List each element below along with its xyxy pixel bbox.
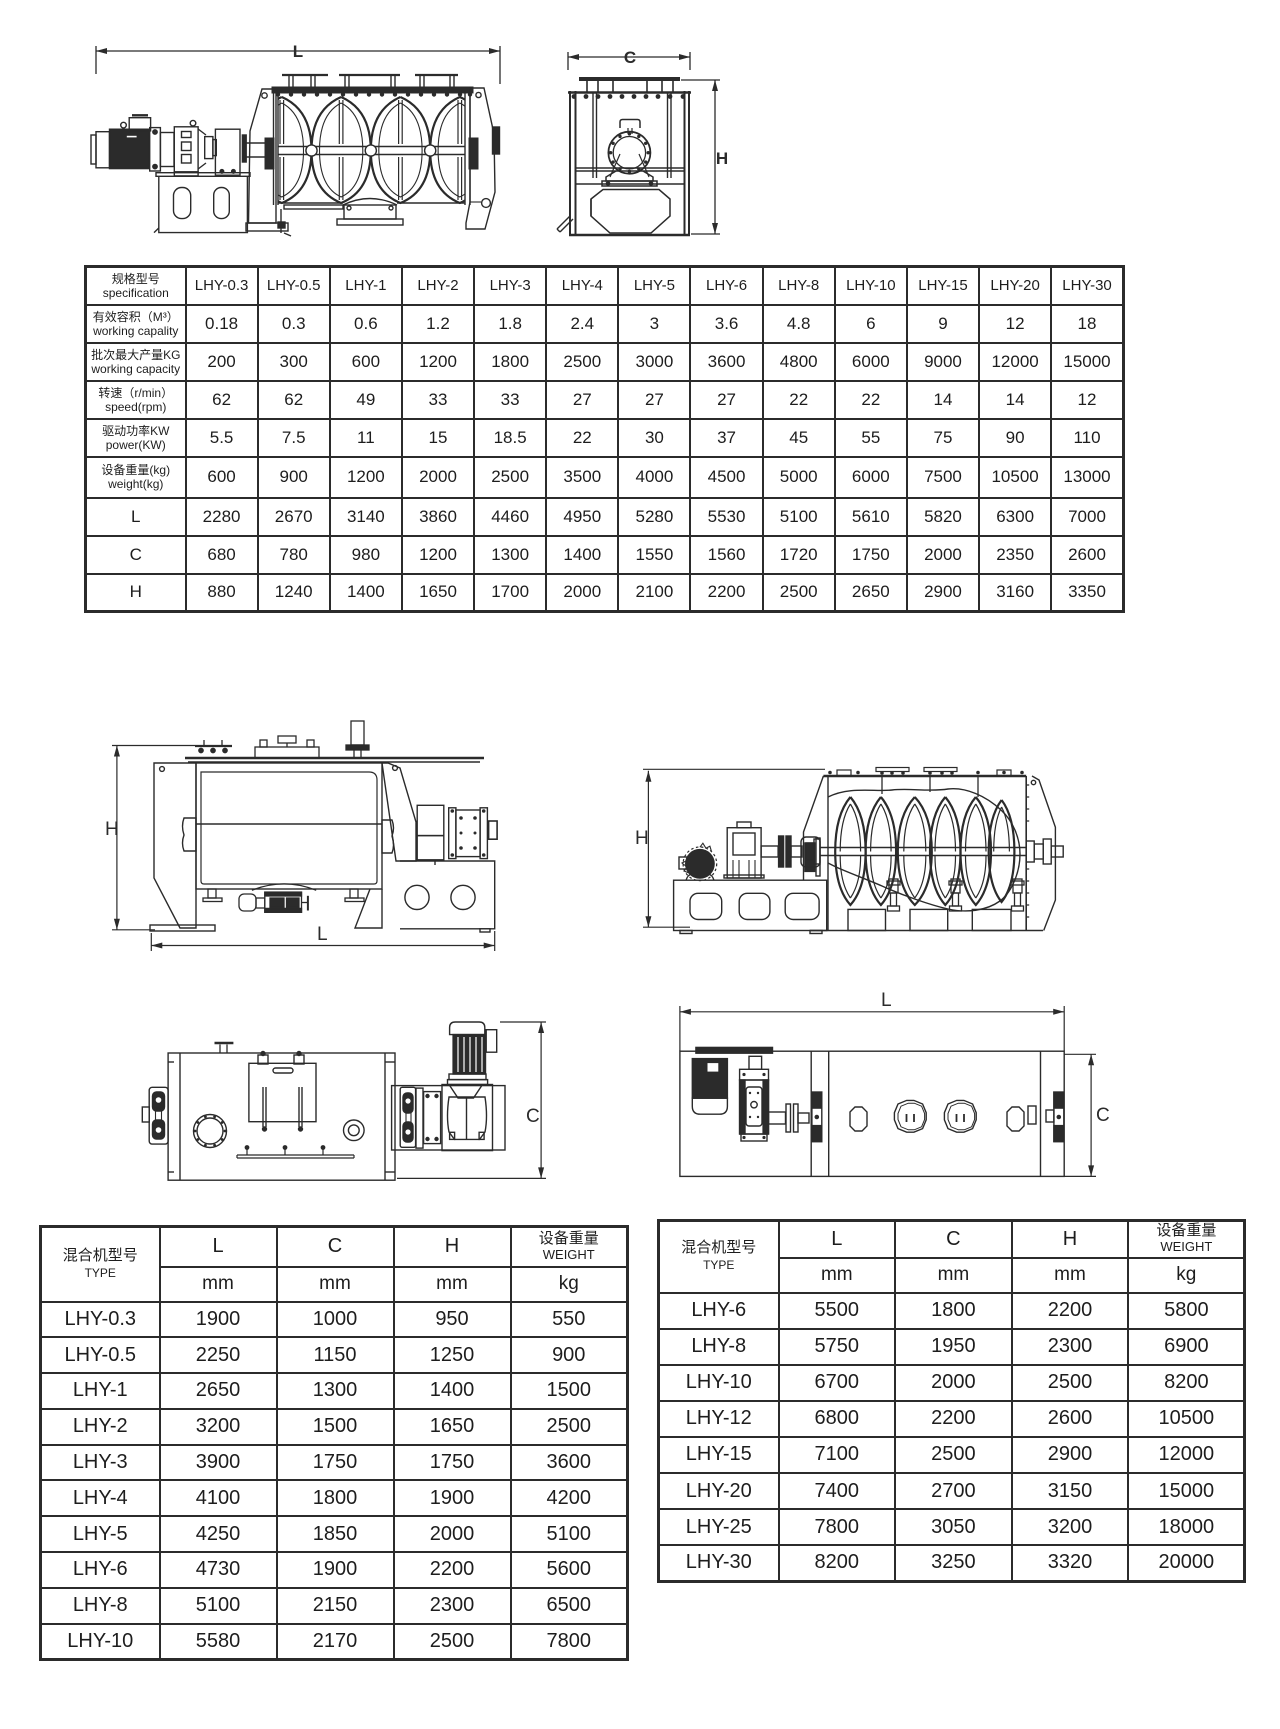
svg-text:C: C (526, 1106, 540, 1127)
svg-text:C: C (1096, 1105, 1110, 1126)
svg-text:H: H (105, 819, 119, 840)
svg-text:C: C (624, 48, 636, 67)
svg-text:H: H (716, 149, 728, 168)
svg-text:L: L (293, 42, 303, 61)
svg-text:L: L (317, 924, 328, 945)
svg-text:H: H (635, 828, 649, 849)
svg-text:L: L (881, 990, 892, 1011)
